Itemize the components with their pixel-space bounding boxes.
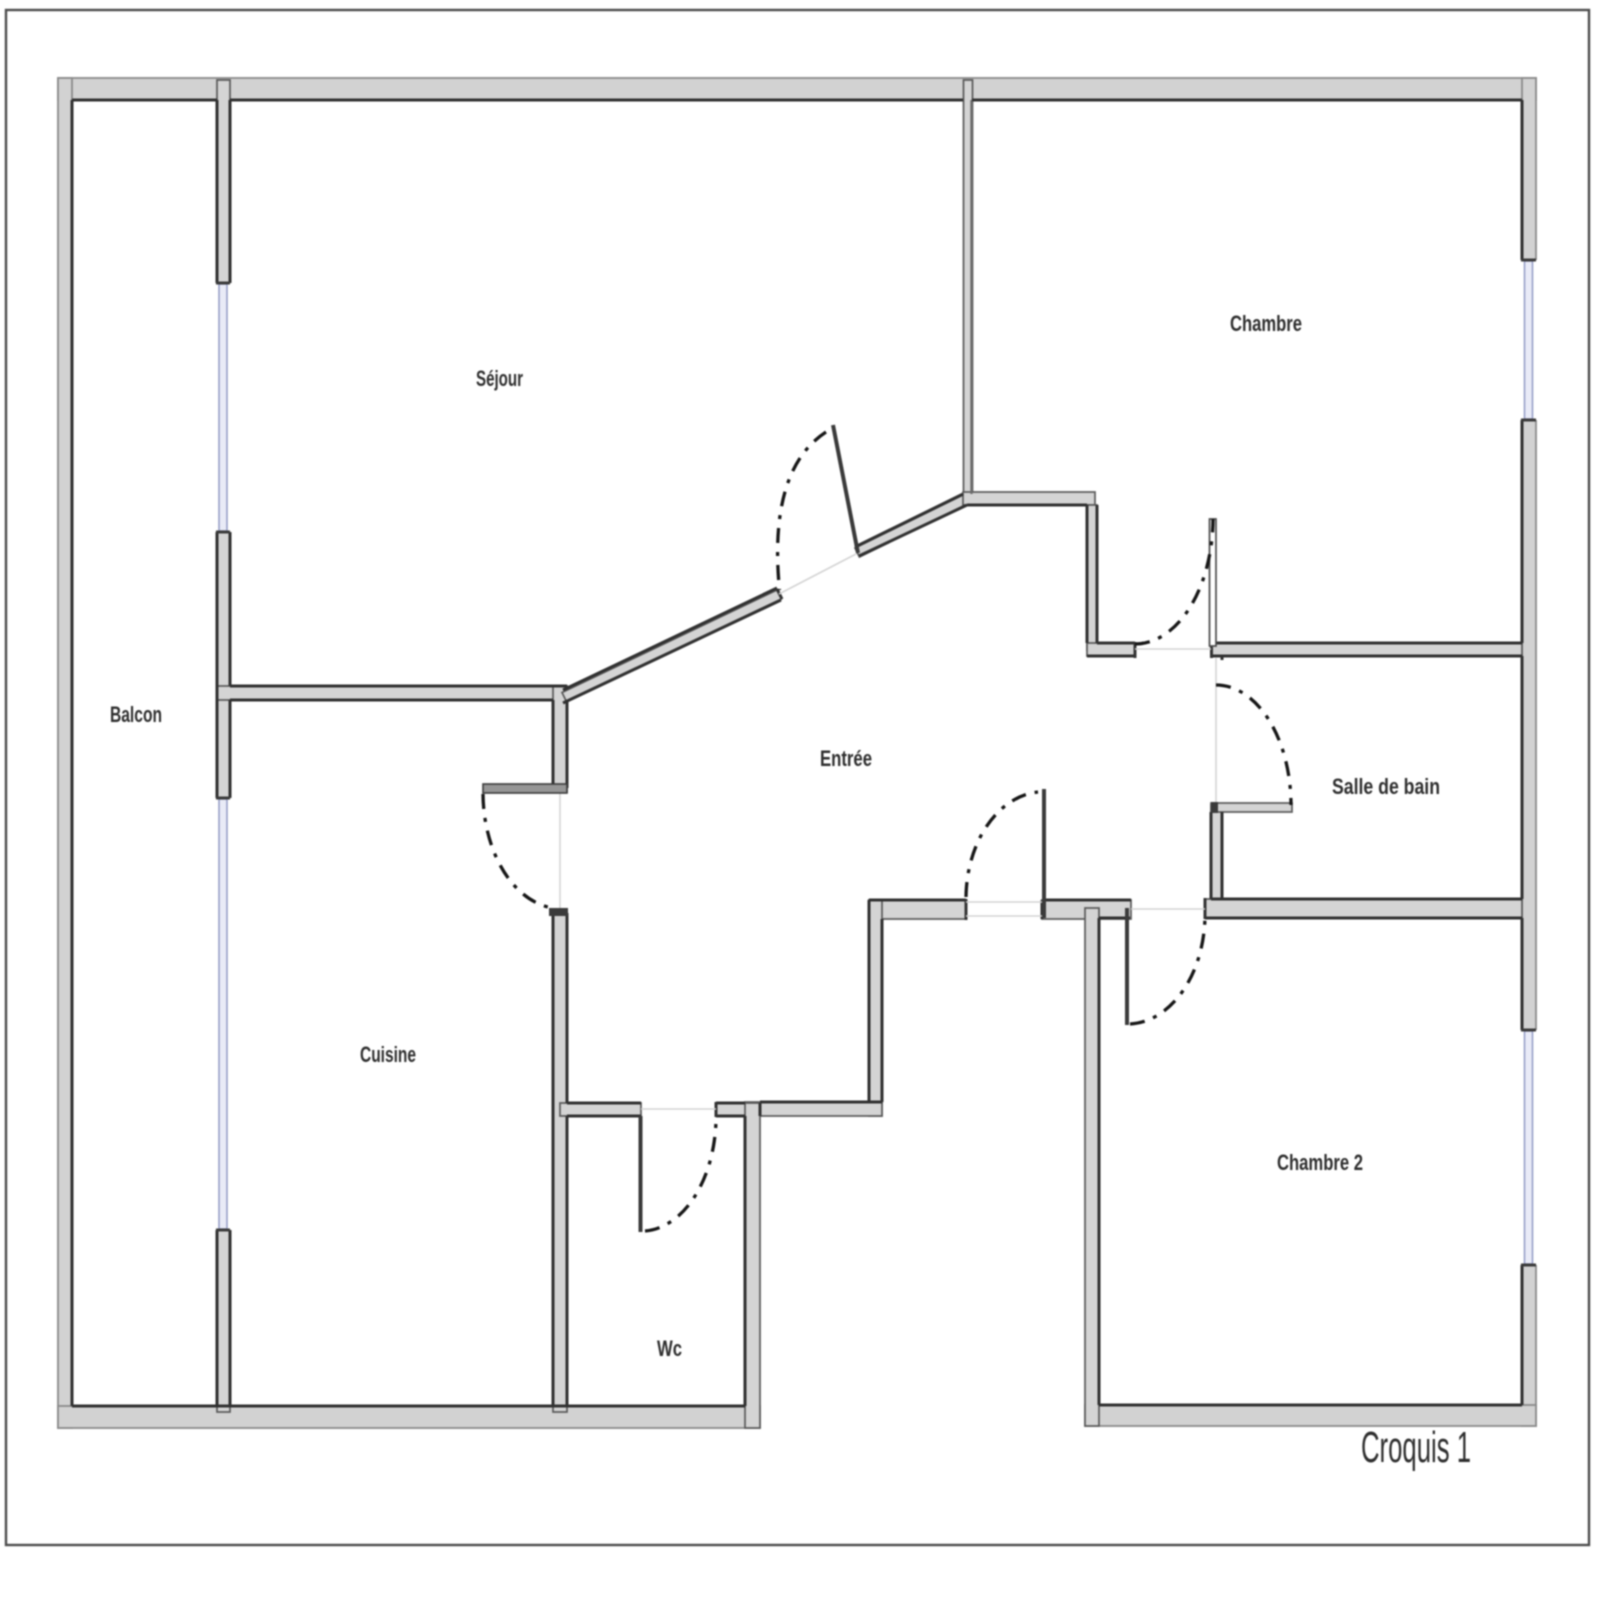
svg-text:Entrée: Entrée <box>820 746 872 771</box>
svg-text:Chambre: Chambre <box>1230 311 1302 336</box>
svg-text:Wc: Wc <box>657 1336 682 1361</box>
svg-text:Balcon: Balcon <box>110 702 162 727</box>
svg-text:Chambre 2: Chambre 2 <box>1277 1150 1363 1175</box>
svg-text:Séjour: Séjour <box>476 366 523 391</box>
svg-text:Croquis 1: Croquis 1 <box>1361 1423 1471 1472</box>
svg-text:Salle de bain: Salle de bain <box>1332 774 1440 799</box>
svg-text:Cuisine: Cuisine <box>360 1042 416 1067</box>
